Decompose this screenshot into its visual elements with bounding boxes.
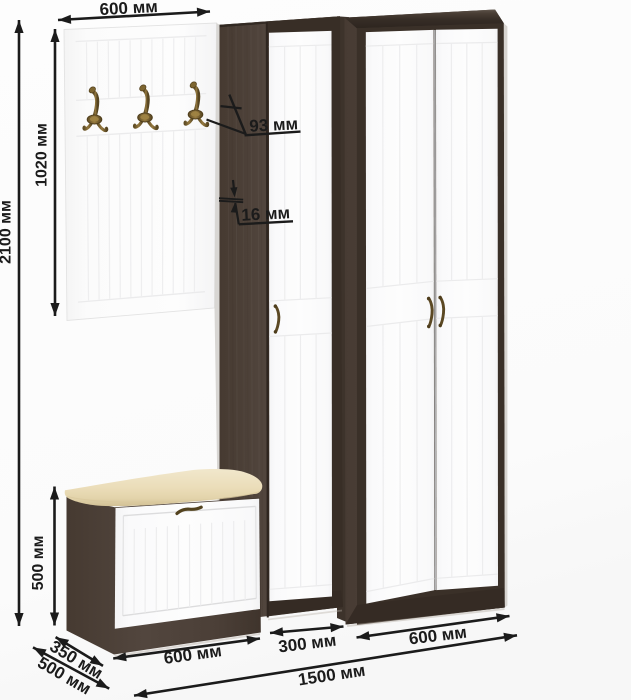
svg-text:2100 мм: 2100 мм [0,200,15,264]
svg-text:600 мм: 600 мм [99,0,158,19]
svg-text:93 мм: 93 мм [249,114,299,136]
svg-text:1020 мм: 1020 мм [34,123,51,187]
svg-text:16 мм: 16 мм [241,203,291,225]
svg-text:500 мм: 500 мм [30,536,47,591]
